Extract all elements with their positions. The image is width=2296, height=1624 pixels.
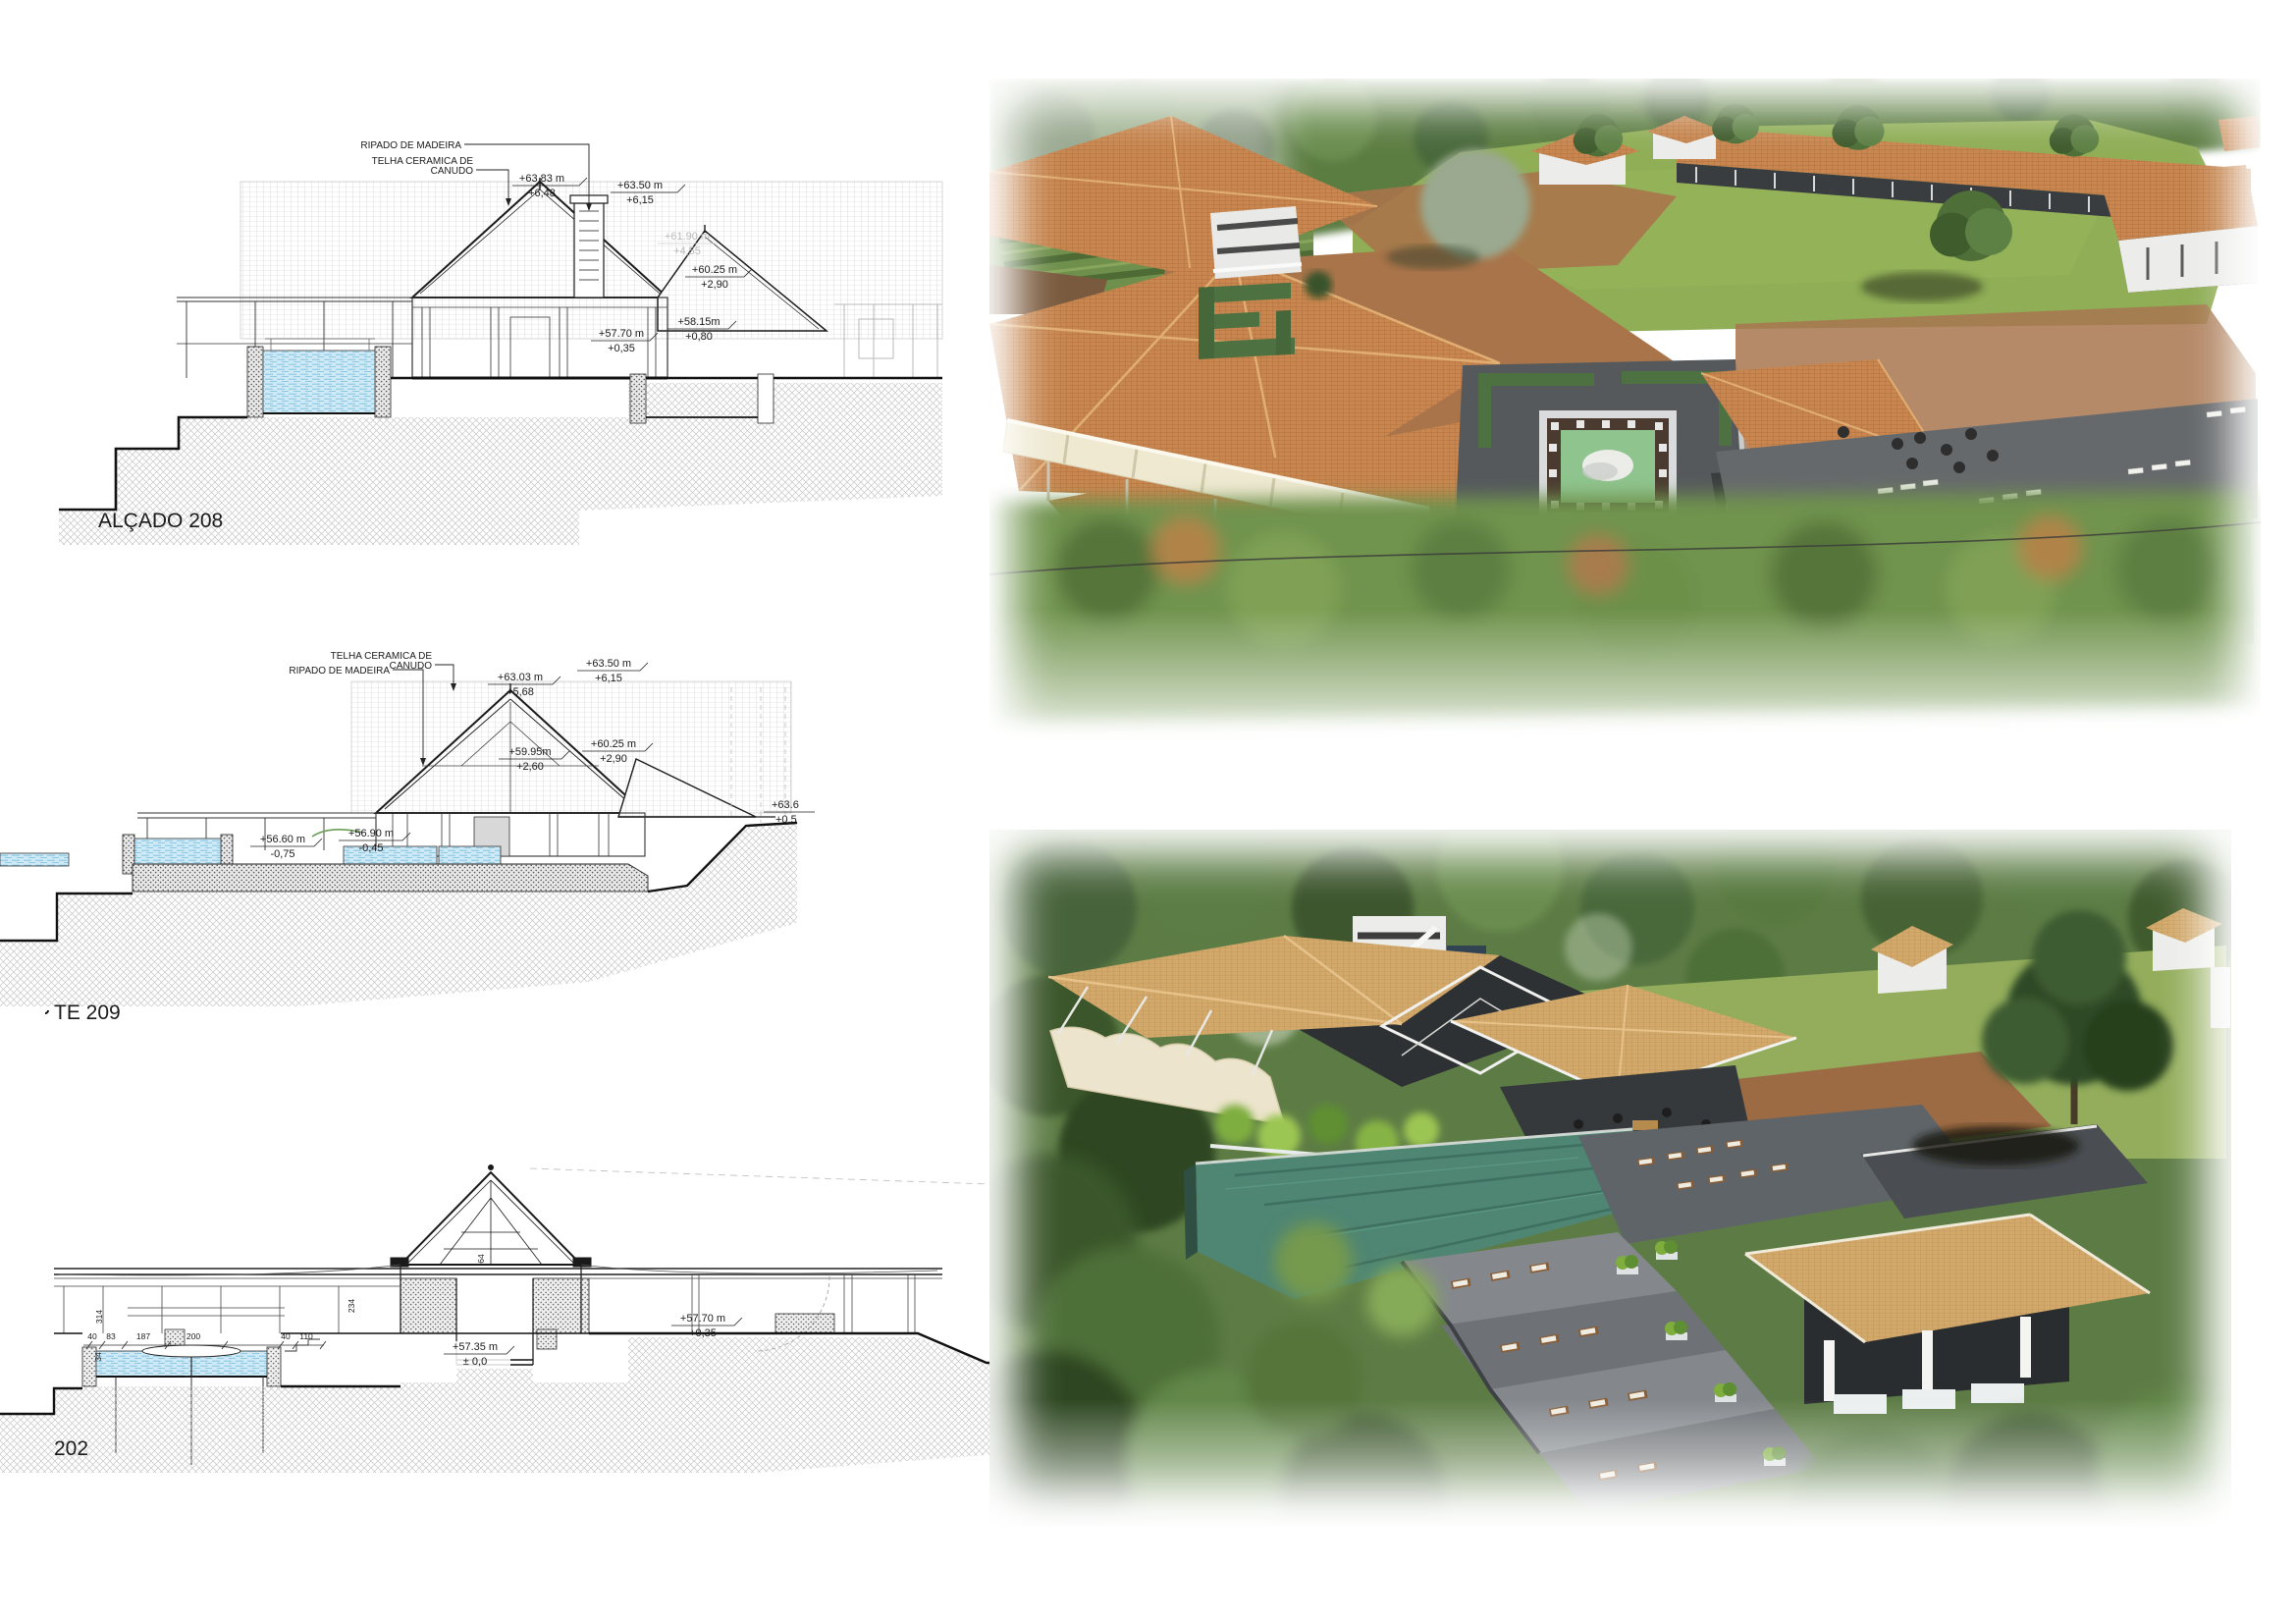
level-marker: +56.60 m -0,75 (250, 834, 322, 860)
svg-text:+60.25 m: +60.25 m (692, 264, 737, 276)
svg-text:+2,60: +2,60 (516, 761, 544, 773)
svg-text:+2,90: +2,90 (701, 279, 728, 291)
level-marker: +57.35 m ± 0,0 (440, 1341, 514, 1368)
canopy-curves (59, 1265, 937, 1275)
pool-section (247, 339, 391, 417)
svg-text:+57.35 m: +57.35 m (453, 1341, 498, 1353)
svg-text:314: 314 (94, 1310, 104, 1324)
svg-text:+6,15: +6,15 (626, 194, 654, 206)
svg-text:40: 40 (87, 1331, 97, 1341)
svg-text:+59.95m: +59.95m (508, 746, 551, 758)
svg-text:+56.90 m: +56.90 m (348, 828, 394, 839)
glass-pavilion-roof (391, 1165, 591, 1268)
svg-text:-0,45: -0,45 (358, 842, 383, 854)
level-marker: +57.70 m +0,35 (671, 1313, 742, 1339)
svg-text:± 0,0: ± 0,0 (463, 1356, 487, 1368)
svg-text:34: 34 (93, 1352, 103, 1362)
svg-text:+6,48: +6,48 (528, 188, 556, 199)
annotation-telha-2: CANUDO (431, 166, 474, 177)
svg-text:+63.83 m: +63.83 m (519, 173, 564, 185)
bottom-fade (989, 609, 2261, 766)
svg-text:+63.50 m: +63.50 m (586, 658, 631, 670)
truncated-letter-fragment (45, 1010, 48, 1013)
hedge-parterre (1199, 283, 1295, 359)
svg-text:+56.60 m: +56.60 m (260, 834, 305, 845)
svg-text:+63.03 m: +63.03 m (498, 672, 543, 683)
svg-text:110: 110 (299, 1331, 313, 1341)
level-marker: +63.50 m +6,15 (577, 658, 648, 684)
sheet: RIPADO DE MADEIRA TELHA CERAMICA DE CANU… (0, 0, 2296, 1624)
section-drawing-209: TELHA CERAMICA DE CANUDO RIPADO DE MADEI… (0, 628, 815, 1031)
svg-text:234: 234 (347, 1299, 356, 1313)
drawing-title-alcado-208: ALÇADO 208 (98, 510, 223, 532)
drawing-title-209: TE 209 (54, 1001, 121, 1024)
svg-text:187: 187 (136, 1331, 150, 1341)
bottom-fade (989, 1399, 2231, 1527)
svg-text:+4,55: +4,55 (673, 245, 701, 257)
svg-text:+0,35: +0,35 (689, 1327, 717, 1339)
svg-text:+6,15: +6,15 (595, 673, 622, 684)
svg-text:+57.70 m: +57.70 m (680, 1313, 725, 1325)
svg-text:+0,5: +0,5 (775, 814, 797, 826)
svg-text:40: 40 (281, 1331, 291, 1341)
svg-text:64: 64 (476, 1254, 486, 1264)
svg-text:+60.25 m: +60.25 m (591, 738, 636, 750)
render-aerial-campus (989, 79, 2261, 766)
svg-text:+63.50 m: +63.50 m (617, 180, 663, 191)
svg-text:+2,90: +2,90 (600, 753, 627, 765)
svg-text:+0,80: +0,80 (685, 331, 713, 343)
svg-text:+58.15m: +58.15m (677, 316, 720, 328)
elevation-drawing-alcado-208: RIPADO DE MADEIRA TELHA CERAMICA DE CANU… (29, 83, 962, 545)
svg-text:+0,35: +0,35 (608, 343, 635, 354)
annotation-ripado: RIPADO DE MADEIRA (360, 140, 461, 151)
svg-text:-0,75: -0,75 (270, 848, 294, 860)
svg-text:83: 83 (106, 1331, 116, 1341)
drawing-title-202: 202 (54, 1437, 88, 1460)
svg-text:+5,68: +5,68 (507, 686, 534, 698)
annotation-ripado: RIPADO DE MADEIRA (289, 666, 390, 677)
render-hillside-pool (989, 830, 2231, 1527)
svg-text:+57.70 m: +57.70 m (599, 328, 644, 340)
svg-text:200: 200 (187, 1331, 200, 1341)
svg-text:+61.90 m: +61.90 m (665, 231, 710, 243)
svg-text:+63.6: +63.6 (772, 799, 799, 811)
